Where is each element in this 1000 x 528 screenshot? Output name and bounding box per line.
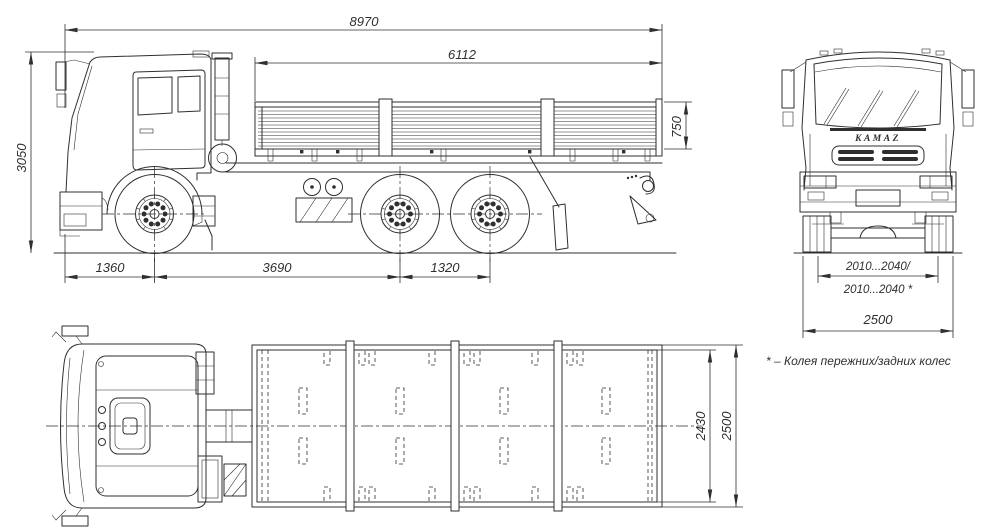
wipers <box>824 88 919 127</box>
floor-brackets <box>268 149 650 161</box>
side-view-truck <box>54 51 676 262</box>
platform-side <box>255 99 662 161</box>
dim-board-height: 750 <box>669 115 684 137</box>
bumper <box>800 172 956 212</box>
stake <box>346 341 354 511</box>
stake <box>541 99 554 156</box>
top-view-dimensions: 2430 2500 <box>657 345 743 507</box>
technical-drawing: 8970 6112 3050 750 1360 3690 1320 <box>0 0 1000 528</box>
dim-track-front: 2010...2040/ <box>845 261 912 273</box>
front-view-dimensions: 2010...2040/ 2010...2040 * 2500 <box>803 256 953 338</box>
front-view: KAMAZ <box>782 49 974 338</box>
wheel-centerlines <box>102 166 542 262</box>
equipment-top <box>196 352 252 502</box>
dim-overall-height: 3050 <box>14 143 29 173</box>
exhaust-stack <box>209 53 237 172</box>
mirrors <box>782 62 974 126</box>
stake <box>451 341 459 511</box>
stake <box>554 341 562 511</box>
cab-side <box>56 51 215 236</box>
board-latches <box>300 150 625 153</box>
dim-overall-width-front: 2500 <box>863 312 894 327</box>
dim-overall-width-top: 2500 <box>719 411 734 442</box>
side-view: 8970 6112 3050 750 1360 3690 1320 <box>14 14 692 283</box>
dim-track-rear: 2010...2040 * <box>843 284 913 296</box>
brand-logo: KAMAZ <box>854 134 901 144</box>
dim-bogie-spacing: 1320 <box>431 260 461 275</box>
dim-platform-inner-width: 2430 <box>693 411 708 442</box>
dim-overall-length: 8970 <box>350 14 380 29</box>
chassis <box>205 157 662 250</box>
drawing-canvas: 8970 6112 3050 750 1360 3690 1320 <box>0 0 1000 528</box>
dim-wheelbase: 3690 <box>263 260 293 275</box>
top-view: 2430 2500 <box>46 326 743 526</box>
front-axle <box>803 212 953 252</box>
mirror-bottom <box>62 516 88 526</box>
mirror-top <box>62 326 88 336</box>
front-view-truck: KAMAZ <box>782 49 974 253</box>
license-plate <box>856 190 900 206</box>
tow-hitch <box>627 175 656 224</box>
footnote: * – Колея пережних/задних колес <box>766 354 951 368</box>
dim-front-overhang: 1360 <box>96 260 126 275</box>
stake <box>379 99 392 156</box>
grille <box>832 146 924 165</box>
dim-platform-length: 6112 <box>448 47 477 62</box>
